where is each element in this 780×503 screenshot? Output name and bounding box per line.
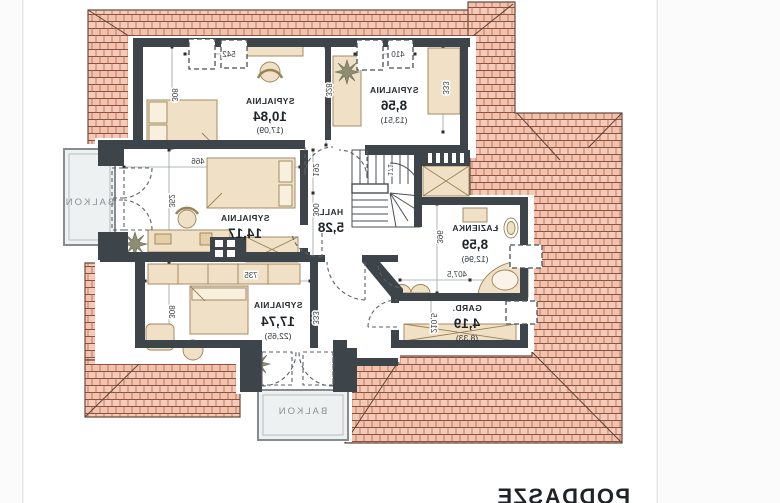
page-title-text: PODDASZE xyxy=(496,484,630,503)
dim-label: 171 xyxy=(386,164,393,176)
vent-grille xyxy=(422,150,470,166)
toilet-icon xyxy=(504,218,518,238)
room-name: GARD. xyxy=(452,303,481,313)
skylight-icon xyxy=(189,39,215,69)
skylight-icon xyxy=(510,245,542,268)
storage-area xyxy=(423,166,469,196)
wardrobe-top-right xyxy=(428,48,460,114)
room-area: 5,28 xyxy=(317,220,344,235)
room-area-gross: (12,96) xyxy=(461,254,488,264)
dim-label: 210,5 xyxy=(429,312,438,333)
dim-label: 308 xyxy=(170,88,179,102)
dim-label: 410 xyxy=(391,50,405,59)
room-area-gross: (22,65) xyxy=(264,331,291,341)
dim-label: 300 xyxy=(311,203,320,217)
floor-plan-svg: 308 542 328 410 333 466 352 192 300 171 … xyxy=(0,0,780,503)
dim-label: 328 xyxy=(324,83,333,97)
page-margin-left xyxy=(0,0,22,503)
skylight-icon xyxy=(506,301,537,324)
room-area: 8,56 xyxy=(380,98,407,113)
dim-label: 333 xyxy=(441,81,450,95)
room-label-balkon-left: BALKON xyxy=(64,197,115,208)
room-area: 10,84 xyxy=(253,109,287,124)
room-name: BALKON xyxy=(277,406,328,417)
page-margin-right xyxy=(658,0,780,503)
room-label-hall: HALL 5,28 xyxy=(317,207,344,235)
dim-label: 466 xyxy=(191,157,205,166)
page-edge-left xyxy=(22,0,24,503)
room-name: BALKON xyxy=(64,197,115,208)
room-area: 8,59 xyxy=(462,237,488,252)
dim-label: 352 xyxy=(167,194,176,208)
room-name: SYPIALNIA xyxy=(246,96,295,106)
page-edge-right xyxy=(657,0,659,503)
room-name: ŁAZIENKA xyxy=(452,223,498,233)
closet-bottom xyxy=(148,264,300,284)
dim-label: 407,5 xyxy=(446,270,467,279)
page-title: PODDASZE xyxy=(496,484,630,503)
floor-plan-page: 308 542 328 410 333 466 352 192 300 171 … xyxy=(0,0,780,503)
dim-label: 396 xyxy=(435,230,444,244)
room-area-gross: (13,51) xyxy=(380,115,407,125)
room-label-garderoba: GARD. 4,19 (8,33) xyxy=(452,303,481,343)
dim-label: 333 xyxy=(311,311,320,325)
dim-label: 308 xyxy=(167,305,176,319)
dim-label: 192 xyxy=(311,163,320,177)
room-name: SYPIALNIA xyxy=(254,300,303,310)
room-area-gross: (17,09) xyxy=(256,125,283,135)
washer xyxy=(463,208,487,222)
room-area: 14,17 xyxy=(228,226,262,241)
bed-bottom xyxy=(190,286,248,334)
dim-label: 542 xyxy=(222,50,236,59)
dim-label: 735 xyxy=(244,271,258,280)
skylight-icon xyxy=(357,40,383,70)
room-area-gross: (8,33) xyxy=(456,333,478,343)
bed-middle xyxy=(207,158,295,208)
room-label-balkon-bottom: BALKON xyxy=(277,406,328,417)
room-area: 17,74 xyxy=(261,314,295,329)
room-name: SYPIALNIA xyxy=(370,85,419,95)
room-area: 4,19 xyxy=(454,316,480,331)
room-name: SYPIALNIA xyxy=(221,213,270,223)
room-name: HALL xyxy=(319,207,343,217)
